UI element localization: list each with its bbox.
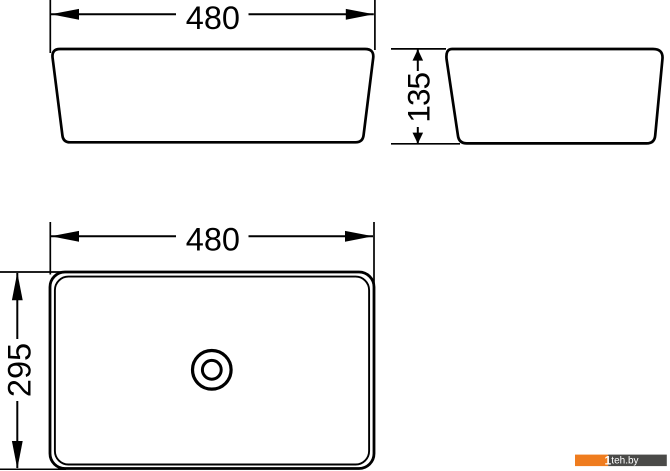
svg-text:480: 480	[186, 0, 240, 36]
svg-text:135: 135	[400, 73, 436, 123]
svg-text:295: 295	[2, 343, 38, 397]
svg-text:teh.by: teh.by	[611, 456, 638, 467]
svg-text:480: 480	[186, 222, 240, 258]
